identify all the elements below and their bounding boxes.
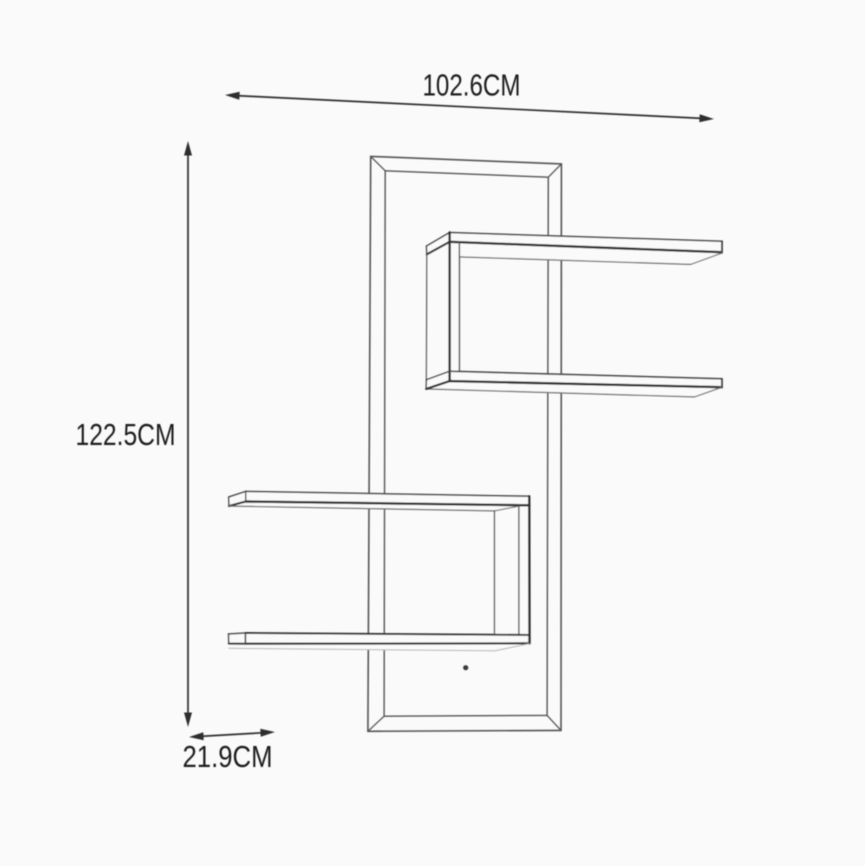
svg-text:21.9CM: 21.9CM [183, 740, 273, 774]
svg-text:102.6CM: 102.6CM [423, 69, 521, 103]
svg-text:122.5CM: 122.5CM [76, 418, 176, 452]
